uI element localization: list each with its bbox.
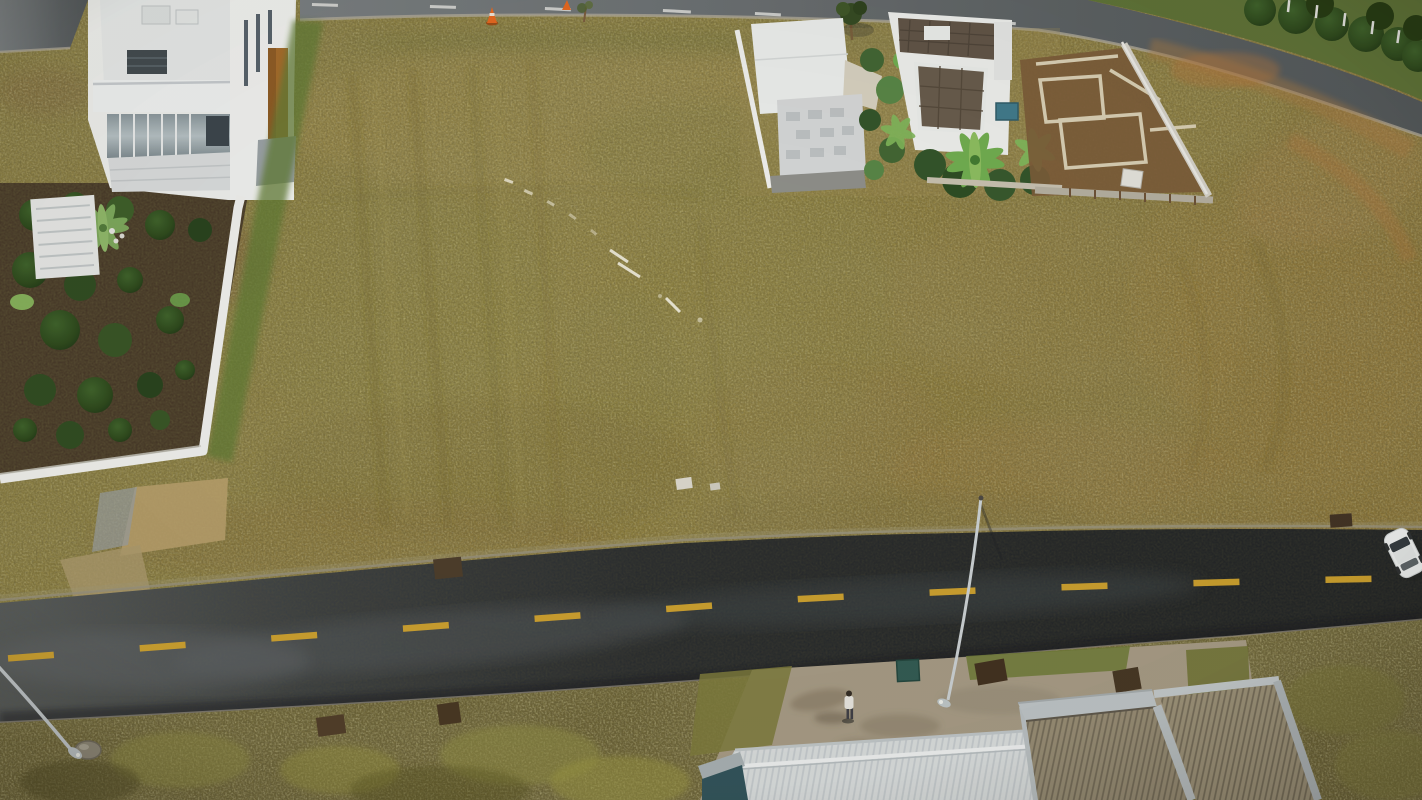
aerial-photo bbox=[0, 0, 1422, 800]
vignette bbox=[0, 0, 1422, 800]
aerial-photo-canvas bbox=[0, 0, 1422, 800]
